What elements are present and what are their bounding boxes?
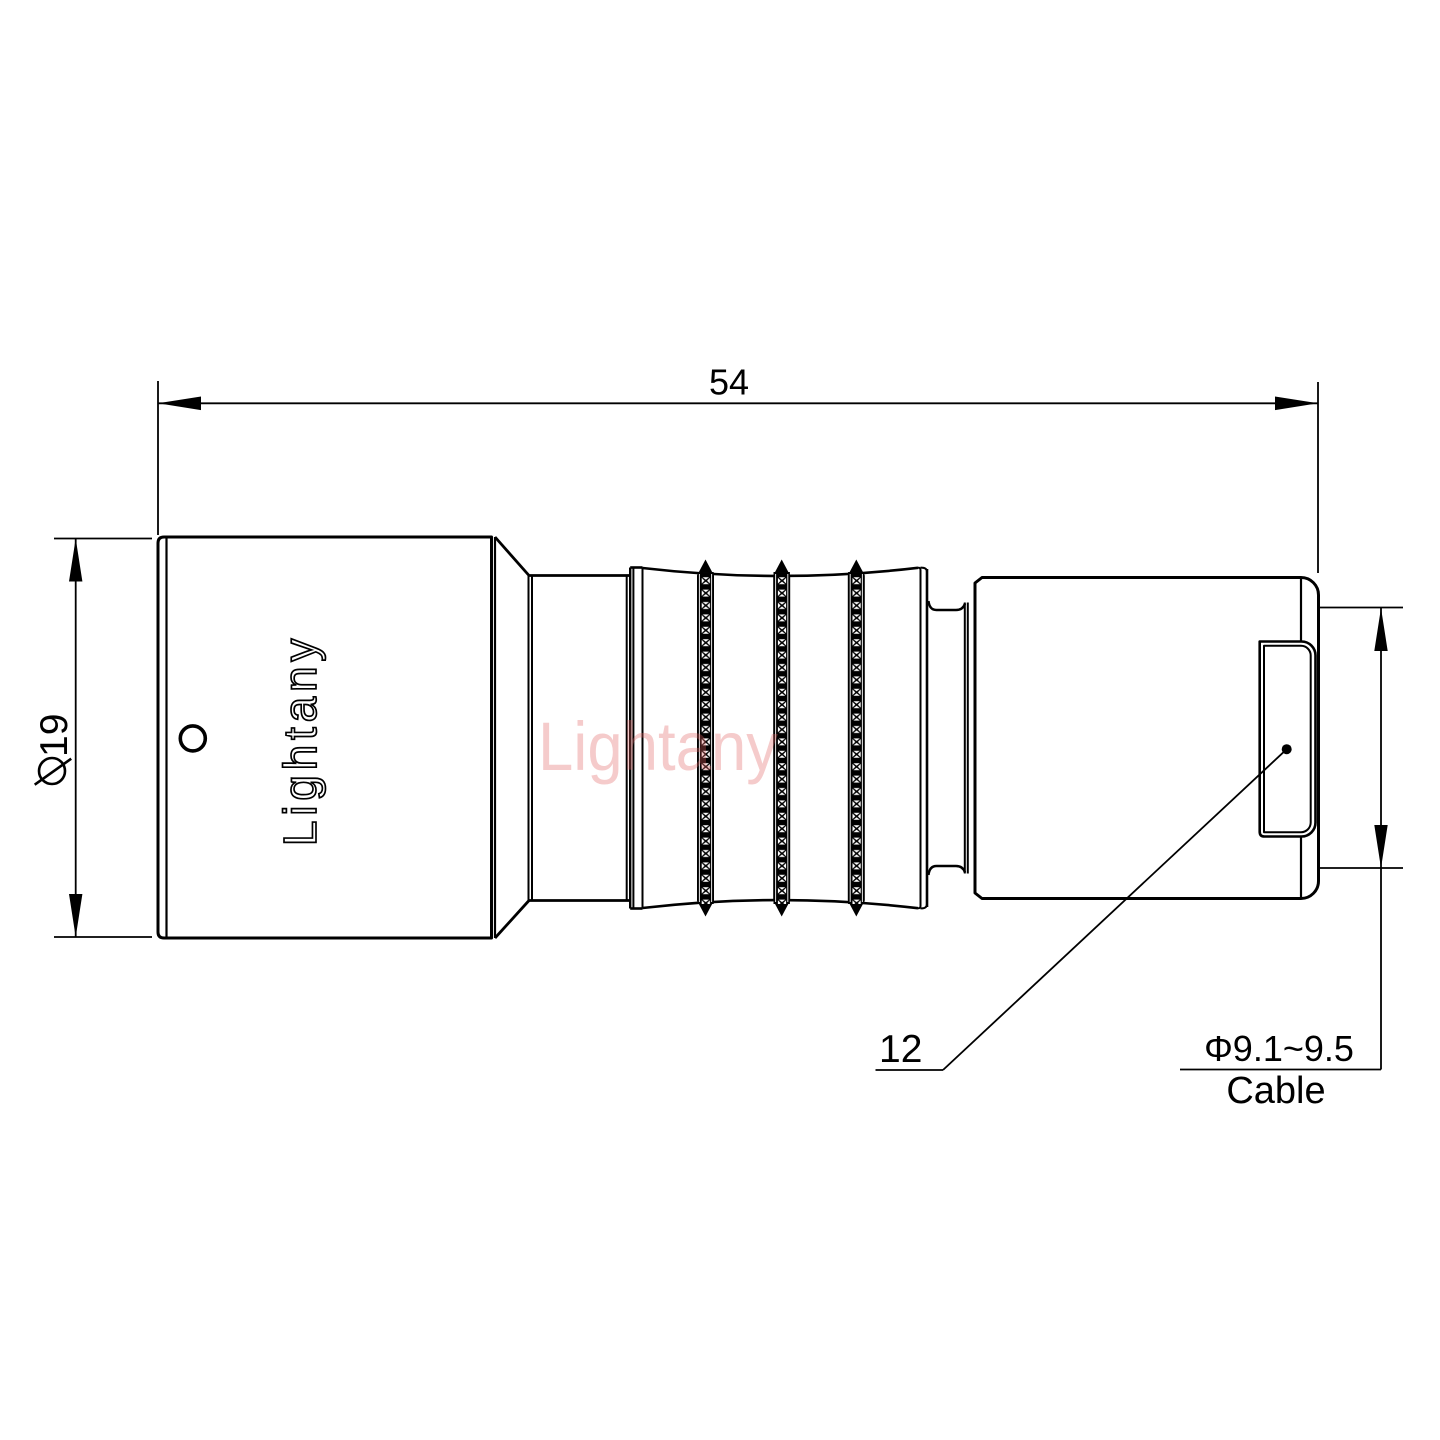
svg-text:Cable: Cable (1226, 1070, 1325, 1112)
svg-text:Lightany: Lightany (274, 634, 326, 846)
svg-text:19: 19 (33, 714, 76, 757)
svg-text:Φ9.1~9.5: Φ9.1~9.5 (1204, 1028, 1354, 1069)
svg-text:54: 54 (709, 362, 749, 403)
svg-text:Lightany: Lightany (538, 708, 778, 785)
svg-text:12: 12 (879, 1028, 922, 1071)
